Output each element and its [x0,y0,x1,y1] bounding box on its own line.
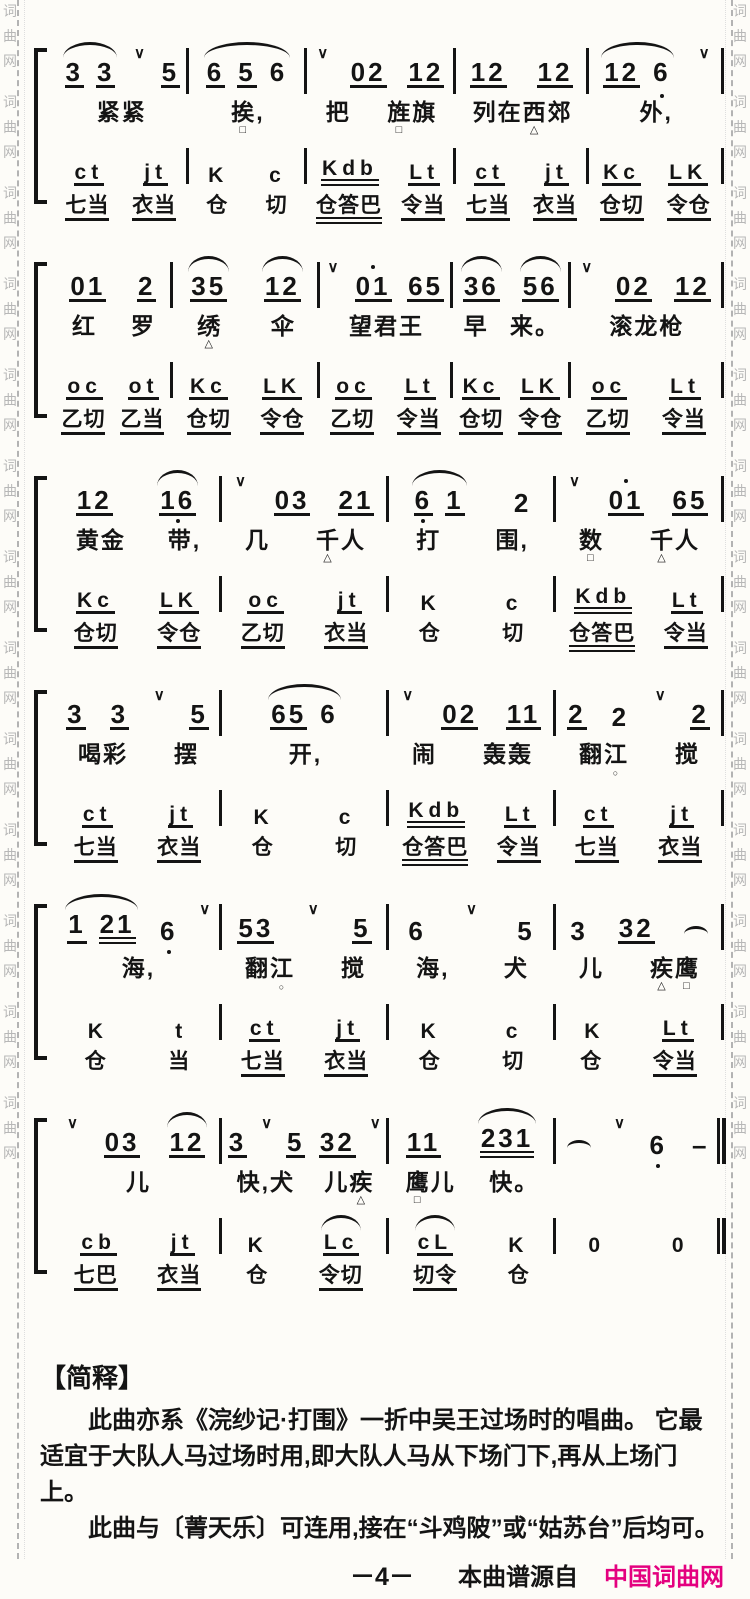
perc-word-measure: 仓切 [221,836,388,872]
notes-section: 【简释】 此曲亦系《浣纱记·打围》一折中吴王过场时的唱曲。 它最适宜于大队人马过… [40,1358,724,1599]
lyric-char: 罗 [131,314,154,339]
lyric-char: 紧 [97,100,120,125]
lyric-char: , [147,956,153,981]
lyric-char: 把 [326,100,349,125]
watermark-char: 曲 [3,302,17,316]
note-token: 53 [237,915,274,944]
breath-mark-icon: ∨ [614,1114,626,1132]
lyric-char: 轰 [508,742,531,767]
note-token: 3 [65,59,84,88]
slur-group: 36 [460,273,503,302]
perc-word-measure: 仓当 [54,1050,221,1086]
note-token: 01 [608,487,645,516]
watermark-char: 曲 [733,211,747,225]
watermark-char: 词 [733,459,747,473]
perc-word-measure: 乙切乙当 [54,408,172,444]
note-token: 2 [567,701,586,730]
percussion-token: 七当 [65,195,109,221]
lyric-measure: 海,犬 [388,954,555,1000]
watermark-char: 词 [733,550,747,564]
slur-group: 126 [600,59,674,88]
note-token: 3 [228,1129,247,1158]
perc-letter-measure: KcLK [172,358,319,408]
note-token: 21 [338,487,375,516]
source-credit: 本曲谱源自中国词曲网 [458,1557,724,1592]
percussion-token: c [505,593,524,614]
lyric-char: , [262,1170,268,1195]
score-system: 0123512∨01653656∨0212红罗绣△伞望君王早来。滚龙枪ocotK… [34,248,722,444]
breath-mark-icon: ∨ [569,472,581,490]
watermark-column-right: 词曲网词曲网词曲网词曲网词曲网词曲网词曲网词曲网词曲网词曲网词曲网词曲网词曲网 [724,0,750,1559]
perc-word-measure: 七当衣当 [54,194,188,230]
lyric-group: 搅 [674,742,699,767]
lyric-group: 千△人 [315,528,365,553]
watermark-char: 曲 [3,120,17,134]
percussion-token: K [583,1021,605,1042]
percussion-token: Lt [662,1018,694,1042]
system-bracket [34,904,47,1060]
lyric-char: 海 [122,956,145,981]
note-token: 01 [69,273,106,302]
watermark-char: 曲 [3,1121,17,1135]
watermark-char: 词 [733,823,747,837]
lyric-group: 旌□旗 [386,100,436,125]
lyric-char: 海 [416,956,439,981]
percussion-token: 衣当 [533,195,577,221]
lyric-measure: 滚龙枪 [570,312,722,358]
lyric-char: 翻 [245,956,268,981]
lyric-char: 君 [374,314,397,339]
slur-group: 16 [156,487,199,516]
melody-measure: ∨0165 [319,248,452,312]
percussion-token: c [505,1021,524,1042]
lyric-char: , [520,528,526,553]
lyric-measure: 列在西△郊 [455,98,589,144]
lyric-group: 海, [121,956,154,981]
note-token: 5 [189,701,208,730]
perc-letter-measure: Kc [188,144,307,194]
percussion-token: oc [66,376,103,400]
note-token: 3 [110,701,129,730]
melody-measure: ∨0211 [388,676,555,740]
watermark-char: 词 [3,95,17,109]
breath-mark-icon: ∨ [698,44,710,62]
melody-measure: ∨0312 [54,1104,221,1168]
perc-word-measure: 七当衣当 [555,836,722,872]
lyric-char: 喝 [78,742,101,767]
lyric-char: , [314,742,320,767]
watermark-char: 曲 [733,666,747,680]
lyric-group: 翻江○ [244,956,294,981]
lyric-char: 黄 [76,528,99,553]
percussion-token: K [420,1021,442,1042]
watermark-char: 曲 [733,939,747,953]
percussion-token: 令当 [664,623,708,649]
watermark-char: 曲 [733,1121,747,1135]
watermark-char: 网 [733,1146,747,1160]
watermark-char: 网 [3,600,17,614]
watermark-char: 网 [733,873,747,887]
perc-letter-measure: ocLt [319,358,452,408]
lyric-char: 犬 [270,1170,293,1195]
perc-letter-measure: cbjt [54,1214,221,1264]
melody-measure: 3656 [452,248,570,312]
breath-mark-icon: ∨ [317,44,329,62]
lyric-char: 打 [416,528,439,553]
lyric-char: 早 [464,314,487,339]
melody-measure: 3512 [172,248,319,312]
note-token: 35 [190,273,227,302]
percussion-token: Lc [323,1232,360,1256]
percussion-token: 衣当 [157,1265,201,1291]
watermark-char: 词 [733,277,747,291]
note-token: 3 [569,918,588,944]
watermark-char: 曲 [733,575,747,589]
percussion-token: 仓 [246,1265,268,1286]
percussion-token: jt [337,590,362,614]
perc-letter-measure: 00 [555,1214,722,1264]
percussion-token: K [207,165,229,186]
watermark-char: 网 [733,782,747,796]
percussion-token: 仓 [508,1265,530,1286]
note-token: 5 [161,59,180,88]
note-token: 3 [66,701,85,730]
percussion-token: Lt [404,376,436,400]
lyric-char: 快 [237,1170,260,1195]
lyric-char: 。 [535,314,558,339]
score-system: 1216∨53∨56∨5332海,翻江○搅海,犬儿疾△鹰□KtctjtKcKLt… [34,890,722,1086]
perc-letter-measure: ctjt [221,1000,388,1050]
lyric-measure: 黄金带, [54,526,221,572]
perc-word-measure: 乙切令当 [319,408,452,444]
watermark-text: 词曲网词曲网词曲网词曲网词曲网词曲网词曲网词曲网词曲网词曲网词曲网词曲网词曲网 [3,4,17,1187]
watermark-char: 网 [733,691,747,705]
note-token: 12 [537,59,574,88]
melody-measure: 6∨5 [388,890,555,954]
note-token: 32 [319,1129,356,1158]
lyric-group: 紧紧 [96,100,146,125]
note-token: 01 [355,273,392,302]
note-token: 21 [99,911,136,944]
note-token: 02 [350,59,387,88]
note-token: 12 [76,487,113,516]
perc-letter-measure: Kt [54,1000,221,1050]
watermark-char: 网 [3,236,17,250]
percussion-token: 仓答巴 [402,837,468,866]
score-system: 33∨5656∨02121212126∨紧紧挨□,把旌□旗列在西△郊外,ctjt… [34,34,722,230]
percussion-token: Kc [462,376,501,400]
percussion-token: 衣当 [157,837,201,863]
note-token: 2 [137,273,156,302]
note-token: 32 [618,915,655,944]
lyric-char: 人 [675,528,698,553]
cue-marker-icon: □ [396,125,403,136]
watermark-char: 曲 [733,302,747,316]
lyric-measure: 数□千△人 [555,526,722,572]
watermark-char: 词 [3,4,17,18]
percussion-token: 仓答巴 [569,623,635,652]
percussion-token: Kc [189,376,228,400]
perc-word-measure: 仓令当 [555,1050,722,1086]
percussion-token: LK [159,590,199,614]
score-systems: 33∨5656∨02121212126∨紧紧挨□,把旌□旗列在西△郊外,ctjt… [34,34,722,1318]
watermark-text: 词曲网词曲网词曲网词曲网词曲网词曲网词曲网词曲网词曲网词曲网词曲网词曲网词曲网 [733,4,747,1187]
lyric-group: 轰轰 [482,742,532,767]
note-token: 11 [506,701,542,730]
lyric-char: 千△ [650,528,673,553]
lyric-measure: 打围, [388,526,555,572]
note-token: 2 [611,704,630,730]
lyric-char: 搅 [675,742,698,767]
score-system: 33∨5656∨021122∨2喝彩摆开,闹轰轰翻江○搅ctjtKcKdbLtc… [34,676,722,872]
percussion-token: Lt [504,804,536,828]
lyric-char: , [664,100,670,125]
melody-measure: 1216 [54,462,221,526]
watermark-char: 词 [733,4,747,18]
percussion-token: 七当 [74,837,118,863]
lyric-char: 紧 [122,100,145,125]
percussion-token: ct [583,804,614,828]
percussion-token: Kc [76,590,115,614]
slur-group: 61 [411,487,468,516]
lyric-char: 快 [489,1170,512,1195]
watermark-char: 网 [733,54,747,68]
lyric-measure: 几千△人 [221,526,388,572]
percussion-token: 令当 [653,1051,697,1077]
note-token: 6 [159,918,178,944]
cue-marker-icon: ○ [613,769,618,778]
lyric-char: 来 [510,314,533,339]
lyric-measure: 翻江○搅 [555,740,722,786]
percussion-token: 仓 [419,1051,441,1072]
percussion-token: K [420,593,442,614]
watermark-char: 曲 [733,29,747,43]
percussion-token: LK [668,162,708,186]
lyric-char: 鹰□ [675,956,698,981]
note-token: 5 [286,1129,305,1158]
lyric-measure: 鹰□儿快。 [388,1168,555,1214]
lyric-char: 数□ [579,528,602,553]
percussion-token: 仓切 [74,623,118,649]
lyric-char: 搅 [341,956,364,981]
lyric-group: 闹 [411,742,436,767]
lyric-group: 千△人 [649,528,699,553]
lyric-char: 开 [289,742,312,767]
percussion-token: jt [168,804,193,828]
percussion-token: ct [82,804,113,828]
slur-group: 35 [187,273,230,302]
note-token: 12 [470,59,507,88]
perc-letter-measure: Kc [388,572,555,622]
lyric-char: 伞 [271,314,294,339]
lyric-char: 枪 [659,314,682,339]
lyric-char: 旗 [412,100,435,125]
percussion-token: 当 [168,1051,190,1072]
watermark-dashed-line [731,0,733,1559]
percussion-token: 仓切 [459,409,503,435]
watermark-char: 曲 [3,211,17,225]
melody-measure: 1216∨ [54,890,221,954]
cue-marker-icon: △ [657,981,665,992]
watermark-char: 曲 [733,1030,747,1044]
perc-word-measure: 仓切 [188,194,307,230]
note-token: 1 [67,911,86,944]
lyric-char: , [193,528,199,553]
watermark-char: 网 [3,1055,17,1069]
lyric-char: 王 [399,314,422,339]
percussion-token: cL [417,1232,454,1256]
watermark-char: 曲 [3,575,17,589]
note-token: 6 [652,59,671,88]
lyric-char: 西△ [523,100,546,125]
watermark-char: 词 [3,368,17,382]
watermark-char: 网 [3,145,17,159]
watermark-char: 曲 [3,393,17,407]
footer-row: －4－ 本曲谱源自中国词曲网 [40,1557,724,1599]
percussion-token: 仓答巴 [316,195,382,224]
lyric-char: 翻 [579,742,602,767]
breath-mark-icon: ∨ [199,900,211,918]
percussion-token: 令当 [497,837,541,863]
watermark-char: 曲 [3,848,17,862]
lyric-measure: 海, [54,954,221,1000]
watermark-char: 网 [733,1055,747,1069]
lyric-group: 滚龙枪 [608,314,683,339]
lyric-char: 几 [245,528,268,553]
percussion-token: 七巴 [74,1265,118,1291]
percussion-token: K [87,1021,109,1042]
perc-letter-measure: ctjt [455,144,589,194]
watermark-char: 曲 [733,484,747,498]
cue-marker-icon: △ [323,553,331,564]
percussion-token: 切 [335,837,357,858]
watermark-char: 曲 [733,120,747,134]
watermark-char: 词 [3,914,17,928]
perc-letter-measure: KdbLt [306,144,454,194]
lyric-group: 喝彩 [77,742,127,767]
watermark-char: 词 [3,459,17,473]
percussion-token: 乙切 [586,409,630,435]
perc-word-measure: 仓切令仓 [452,408,570,444]
percussion-token: K [507,1235,529,1256]
watermark-char: 网 [3,691,17,705]
percussion-token: Kdb [574,586,632,614]
lyric-group: 儿 [125,1170,150,1195]
melody-measure: ∨0321 [221,462,388,526]
slur-group: 121 [64,911,138,944]
lyric-group: 疾△鹰□ [649,956,699,981]
lyric-group: 儿疾△ [323,1170,373,1195]
lyric-measure: 儿疾△鹰□ [555,954,722,1000]
lyric-group: 犬 [503,956,528,981]
percussion-token: ot [128,376,160,400]
note-token: 1 [445,487,464,516]
perc-letter-measure: Kc [388,1000,555,1050]
note-token: 03 [104,1129,141,1158]
lyric-char: 金 [101,528,124,553]
note-token: 6 [649,1132,668,1158]
perc-word-measure: 仓切 [388,1050,555,1086]
watermark-char: 词 [733,1096,747,1110]
percussion-token: 令仓 [157,623,201,649]
watermark-char: 曲 [3,484,17,498]
source-credit-prefix: 本曲谱源自 [458,1564,578,1591]
percussion-token: 衣当 [658,837,702,863]
lyric-char: 儿 [431,1170,454,1195]
melody-measure: 332 [555,890,722,954]
watermark-char: 词 [3,823,17,837]
system-bracket [34,1118,47,1274]
slur-group: Lc [320,1232,363,1256]
lyric-char: 望 [349,314,372,339]
perc-letter-measure: KcLK [588,144,722,194]
note-token: 6 [407,918,426,944]
breath-mark-icon: ∨ [402,686,414,704]
breath-mark-icon: ∨ [134,44,146,62]
note-token: 03 [274,487,311,516]
lyric-group: 海, [415,956,448,981]
lyric-char: 轰 [483,742,506,767]
note-token: 2 [690,701,709,730]
lyric-measure: 外, [588,98,722,144]
lyric-group: 儿 [578,956,603,981]
percussion-token: oc [247,590,284,614]
lyric-char: 外 [639,100,662,125]
lyric-char: 绣△ [197,314,220,339]
percussion-token: ct [474,162,505,186]
watermark-char: 词 [733,641,747,655]
percussion-token: oc [335,376,372,400]
lyric-char: , [256,100,262,125]
watermark-char: 曲 [3,29,17,43]
note-token: 56 [522,273,559,302]
lyric-measure: 喝彩摆 [54,740,221,786]
melody-measure: ∨0165 [555,462,722,526]
watermark-char: 网 [733,236,747,250]
melody-measure: 656 [188,34,307,98]
percussion-token: 令切 [319,1265,363,1291]
slur-group: 56 [519,273,562,302]
watermark-char: 词 [3,641,17,655]
watermark-dashed-line [17,0,19,1559]
cue-marker-icon: △ [204,339,212,350]
perc-word-measure: 仓切令仓 [588,194,722,230]
score-system: ∨03123∨532∨11231∨6–儿快,犬儿疾△鹰□儿快。cbjtKLccL… [34,1104,722,1300]
breath-mark-icon: ∨ [67,1114,79,1132]
cue-marker-icon: □ [683,981,690,992]
lyric-measure: 快,犬儿疾△ [221,1168,388,1214]
note-token: 5 [352,915,371,944]
percussion-token: Lt [669,376,701,400]
percussion-token: c [338,807,357,828]
watermark-char: 词 [3,550,17,564]
perc-word-measure: 七当衣当 [221,1050,388,1086]
melody-measure: ∨0212 [570,248,722,312]
melody-measure: 3∨532∨ [221,1104,388,1168]
percussion-token: 切 [502,1051,524,1072]
system-grid: 1216∨0321612∨0165黄金带,几千△人打围,数□千△人KcLKocj… [54,462,722,658]
lyric-char: 摆 [174,742,197,767]
lyric-measure: 儿 [54,1168,221,1214]
percussion-token: 衣当 [132,195,176,221]
breath-mark-icon: ∨ [581,258,593,276]
watermark-char: 网 [3,418,17,432]
watermark-char: 词 [3,1005,17,1019]
perc-word-measure: 仓切 [388,622,555,658]
percussion-token: LK [520,376,560,400]
note-token: 5 [516,918,535,944]
percussion-token: Kc [602,162,641,186]
